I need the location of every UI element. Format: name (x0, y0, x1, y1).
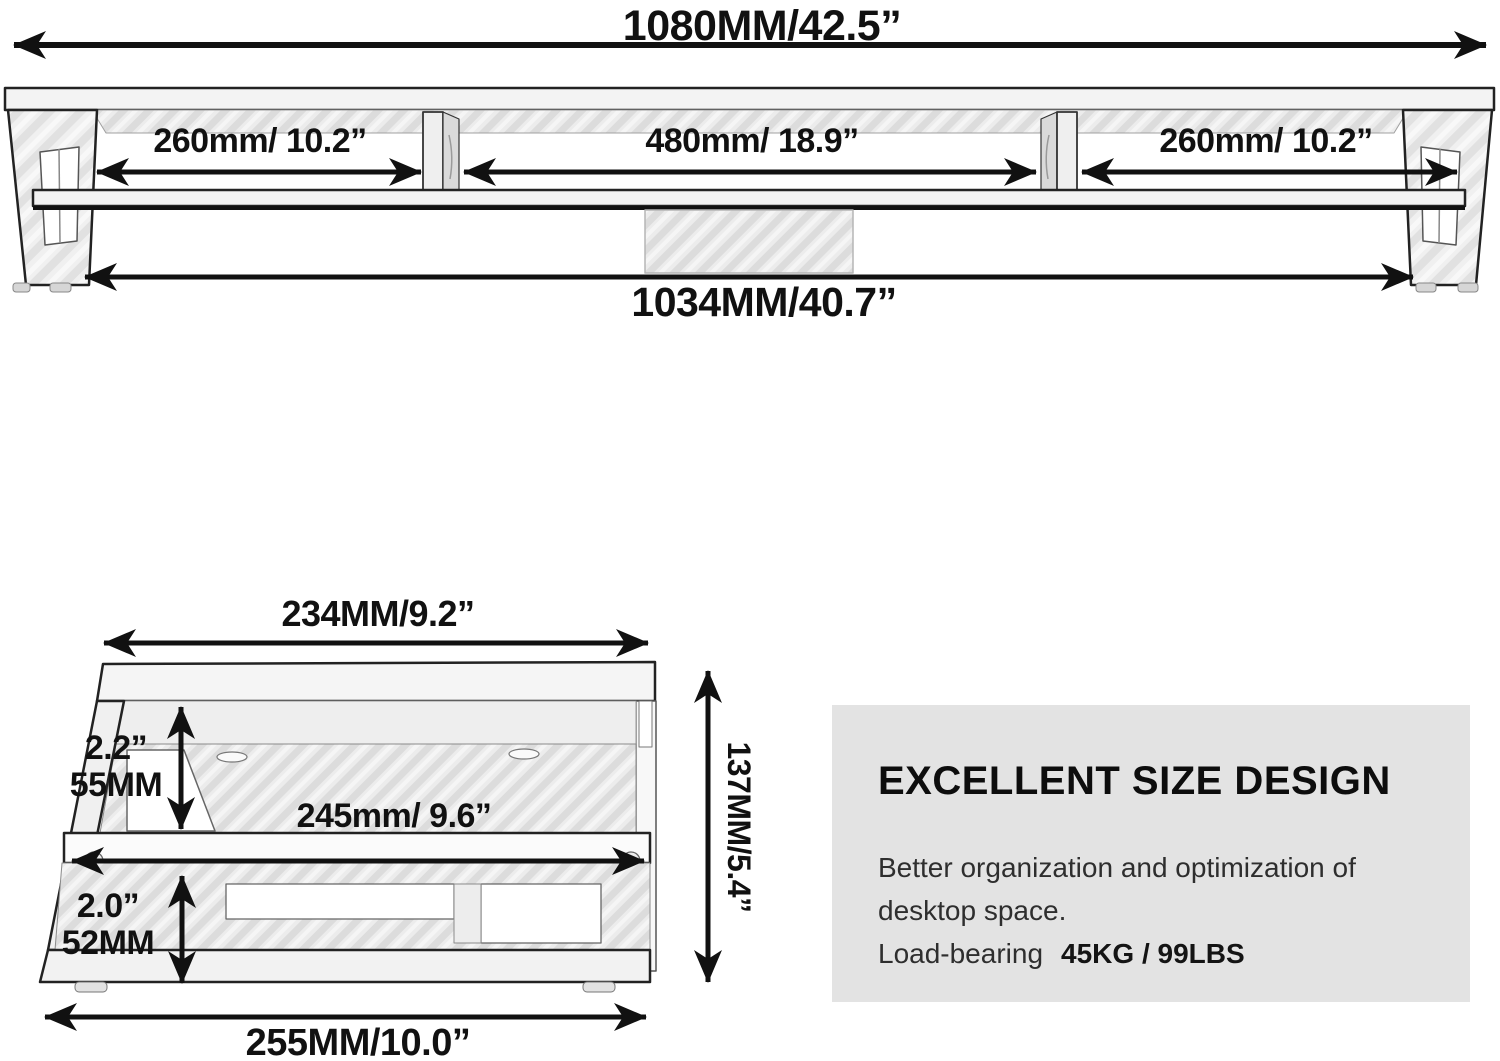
divider-right (1041, 112, 1077, 190)
info-body-line2: desktop space. (878, 889, 1452, 932)
side-lower-cutout-left (226, 884, 454, 919)
lower-gap-mm: 52MM (62, 925, 154, 962)
left-section-label: 260mm/ 10.2” (153, 124, 366, 160)
lower-gap-label: 2.0” 52MM (62, 888, 154, 962)
load-label: Load-bearing (878, 938, 1043, 969)
right-foot-inner (1416, 283, 1436, 292)
screw-cap-left (217, 752, 247, 762)
divider-left (423, 112, 459, 190)
product-dimension-infographic: 1080MM/42.5” 260mm/ 10.2” 480mm/ 18.9” 2… (0, 0, 1500, 1061)
info-box: EXCELLENT SIZE DESIGN Better organizatio… (832, 705, 1470, 1002)
upper-gap-label: 2.2” 55MM (70, 730, 162, 804)
right-section-label: 260mm/ 10.2” (1159, 124, 1372, 160)
middle-rail (33, 190, 1465, 206)
side-lower-cutout-right (481, 884, 601, 943)
upper-gap-inches: 2.2” (70, 730, 162, 767)
left-foot-outer (13, 283, 30, 292)
info-body-line1: Better organization and optimization of (878, 846, 1452, 889)
side-foot-left (75, 982, 107, 992)
front-view-drawing (5, 45, 1494, 292)
lower-gap-inches: 2.0” (62, 888, 154, 925)
load-value: 45KG / 99LBS (1061, 938, 1245, 969)
top-shelf-board (5, 88, 1494, 110)
right-foot-outer (1458, 283, 1478, 292)
info-load-line: Load-bearing45KG / 99LBS (878, 932, 1452, 975)
left-foot-inner (50, 283, 71, 292)
upper-gap-mm: 55MM (70, 767, 162, 804)
side-top-width-label: 234MM/9.2” (281, 595, 474, 633)
info-heading: EXCELLENT SIZE DESIGN (878, 759, 1452, 804)
side-lower-divider (454, 884, 481, 943)
center-support-block (645, 210, 853, 273)
side-back-bracket (639, 701, 652, 747)
overall-height-label: 137MM/5.4” (719, 662, 757, 992)
middle-section-label: 480mm/ 18.9” (645, 124, 858, 160)
overall-width-label: 1080MM/42.5” (623, 4, 901, 49)
inner-width-label: 1034MM/40.7” (631, 281, 896, 324)
side-foot-right (583, 982, 615, 992)
shelf-width-label: 245mm/ 9.6” (297, 799, 492, 835)
side-under-board (116, 701, 636, 744)
base-width-label: 255MM/10.0” (246, 1024, 471, 1061)
side-top-board (97, 662, 655, 701)
screw-cap-right (509, 749, 539, 759)
